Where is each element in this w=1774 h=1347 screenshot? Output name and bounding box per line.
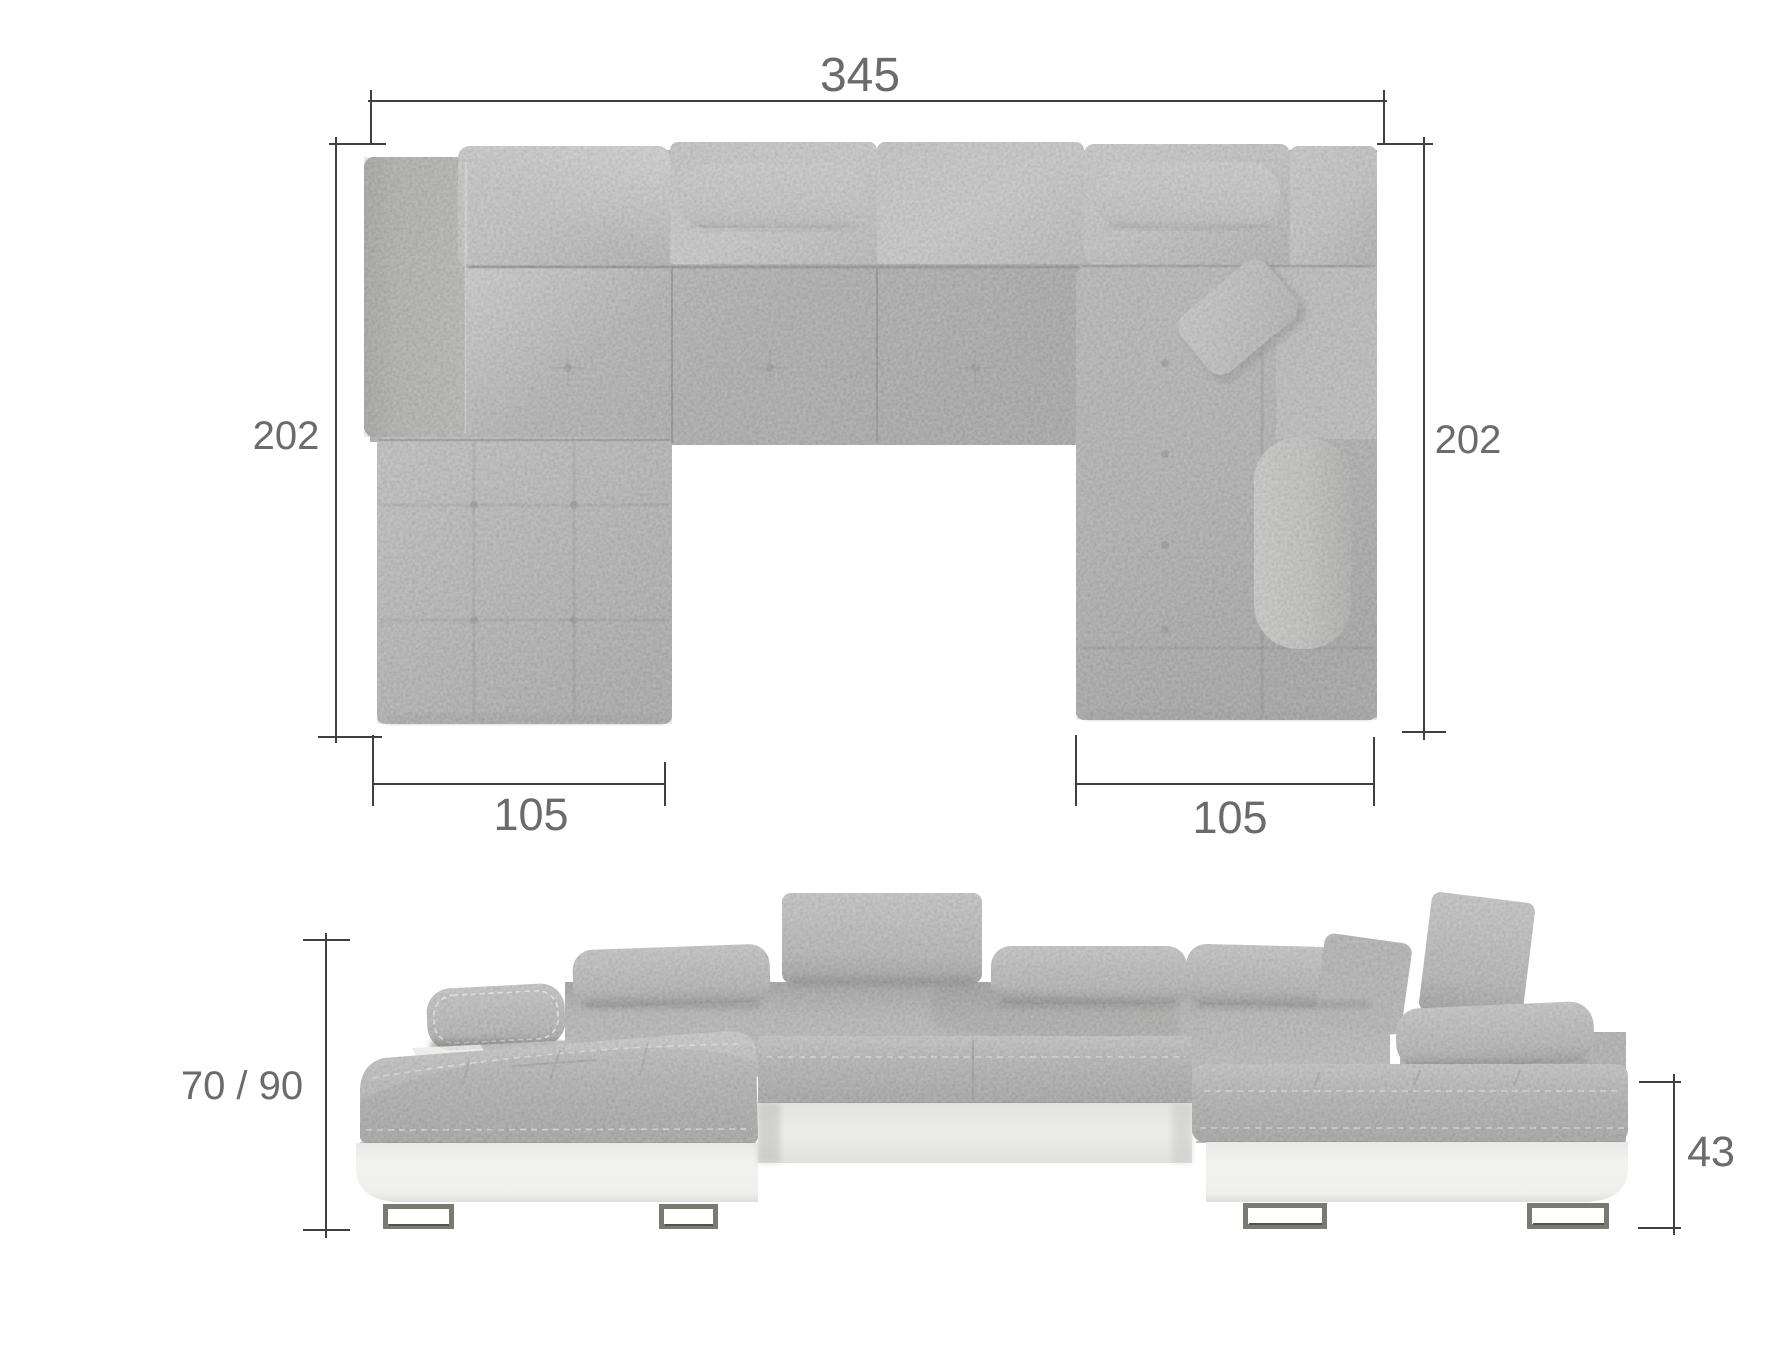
svg-text:345: 345	[820, 49, 900, 102]
svg-text:105: 105	[1192, 792, 1267, 843]
svg-text:202: 202	[253, 414, 320, 458]
svg-text:202: 202	[1435, 418, 1502, 462]
svg-text:43: 43	[1687, 1128, 1735, 1176]
svg-text:70 / 90: 70 / 90	[181, 1064, 303, 1108]
svg-text:105: 105	[493, 789, 568, 840]
